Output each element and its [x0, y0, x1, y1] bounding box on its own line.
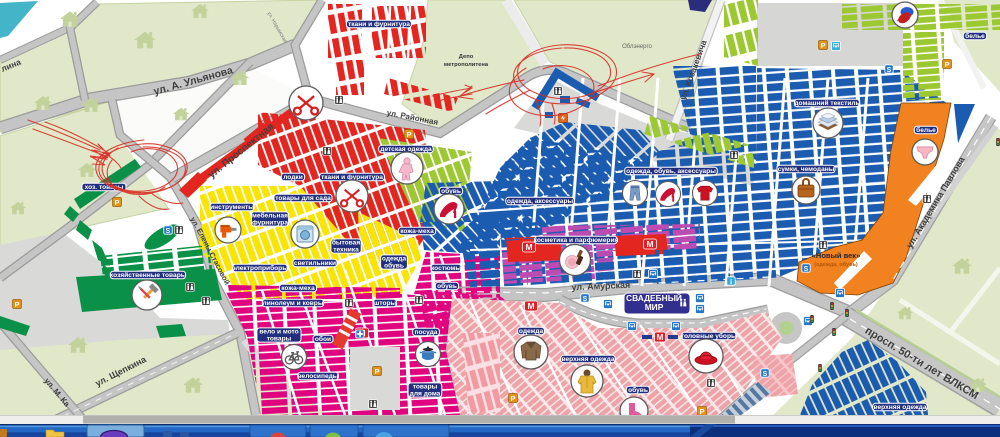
- svg-text:лодки: лодки: [283, 174, 303, 181]
- svg-text:верхняя одежда: верхняя одежда: [562, 356, 615, 363]
- svg-text:«Новый век»: «Новый век»: [812, 251, 861, 260]
- svg-text:обувь: обувь: [384, 261, 404, 269]
- svg-text:i: i: [730, 277, 732, 286]
- svg-text:обои: обои: [315, 335, 331, 343]
- svg-text:S: S: [583, 296, 588, 303]
- svg-text:домашний текстиль: домашний текстиль: [794, 99, 859, 107]
- svg-text:посуда: посуда: [415, 329, 438, 336]
- svg-text:кожа-меха: кожа-меха: [281, 285, 315, 292]
- svg-text:одежда: одежда: [519, 328, 544, 335]
- svg-text:М: М: [525, 242, 532, 252]
- svg-text:товары: товары: [267, 335, 292, 342]
- svg-text:белье: белье: [965, 32, 985, 40]
- svg-text:Облэнерго: Облэнерго: [622, 44, 652, 50]
- svg-text:М: М: [657, 333, 664, 342]
- svg-text:линолеум и ковры: линолеум и ковры: [263, 300, 324, 307]
- svg-text:P: P: [114, 198, 119, 207]
- svg-text:P: P: [944, 60, 949, 69]
- svg-text:велосипеды: велосипеды: [298, 373, 339, 380]
- svg-text:S: S: [804, 266, 809, 273]
- svg-text:S: S: [166, 228, 171, 235]
- svg-text:М: М: [646, 239, 653, 249]
- svg-text:светильники: светильники: [294, 260, 336, 267]
- svg-text:обувь: обувь: [437, 282, 457, 290]
- svg-text:хозяйственные товары: хозяйственные товары: [110, 271, 187, 279]
- svg-text:P: P: [14, 300, 19, 309]
- svg-text:S: S: [887, 67, 892, 74]
- svg-text:М: М: [527, 301, 534, 311]
- svg-text:электроприборы: электроприборы: [232, 264, 288, 272]
- svg-text:P: P: [820, 41, 825, 50]
- svg-text:белье: белье: [916, 126, 936, 134]
- svg-text:(одежда, обувь): (одежда, обувь): [814, 261, 858, 268]
- svg-text:инструменты: инструменты: [210, 204, 254, 211]
- svg-text:кожа-меха: кожа-меха: [400, 228, 434, 235]
- svg-text:техника: техника: [333, 246, 359, 253]
- svg-text:Депо: Депо: [459, 54, 474, 60]
- svg-text:верхняя одежда: верхняя одежда: [874, 404, 927, 411]
- svg-text:одежда, обувь, аксессуары: одежда, обувь, аксессуары: [626, 167, 716, 175]
- svg-text:МИР: МИР: [645, 302, 664, 312]
- svg-text:сумки, чемоданы: сумки, чемоданы: [778, 166, 835, 173]
- svg-text:P: P: [374, 367, 379, 376]
- svg-text:шторы: шторы: [374, 300, 397, 307]
- svg-text:товары для сада: товары для сада: [275, 195, 331, 202]
- svg-text:P: P: [406, 130, 411, 139]
- svg-text:для дома: для дома: [410, 390, 441, 397]
- svg-text:ткани и фурнитура: ткани и фурнитура: [348, 21, 410, 28]
- svg-text:фурнитура: фурнитура: [252, 219, 288, 226]
- svg-text:одежда, аксессуары: одежда, аксессуары: [507, 198, 574, 205]
- svg-text:метрополитена: метрополитена: [444, 62, 489, 68]
- svg-text:обувь: обувь: [628, 386, 648, 394]
- svg-text:костюмы: костюмы: [431, 265, 461, 272]
- svg-text:P: P: [510, 394, 515, 403]
- svg-text:косметика и парфюмерия: косметика и парфюмерия: [534, 237, 619, 244]
- svg-text:P: P: [699, 407, 704, 416]
- svg-text:S: S: [763, 371, 768, 378]
